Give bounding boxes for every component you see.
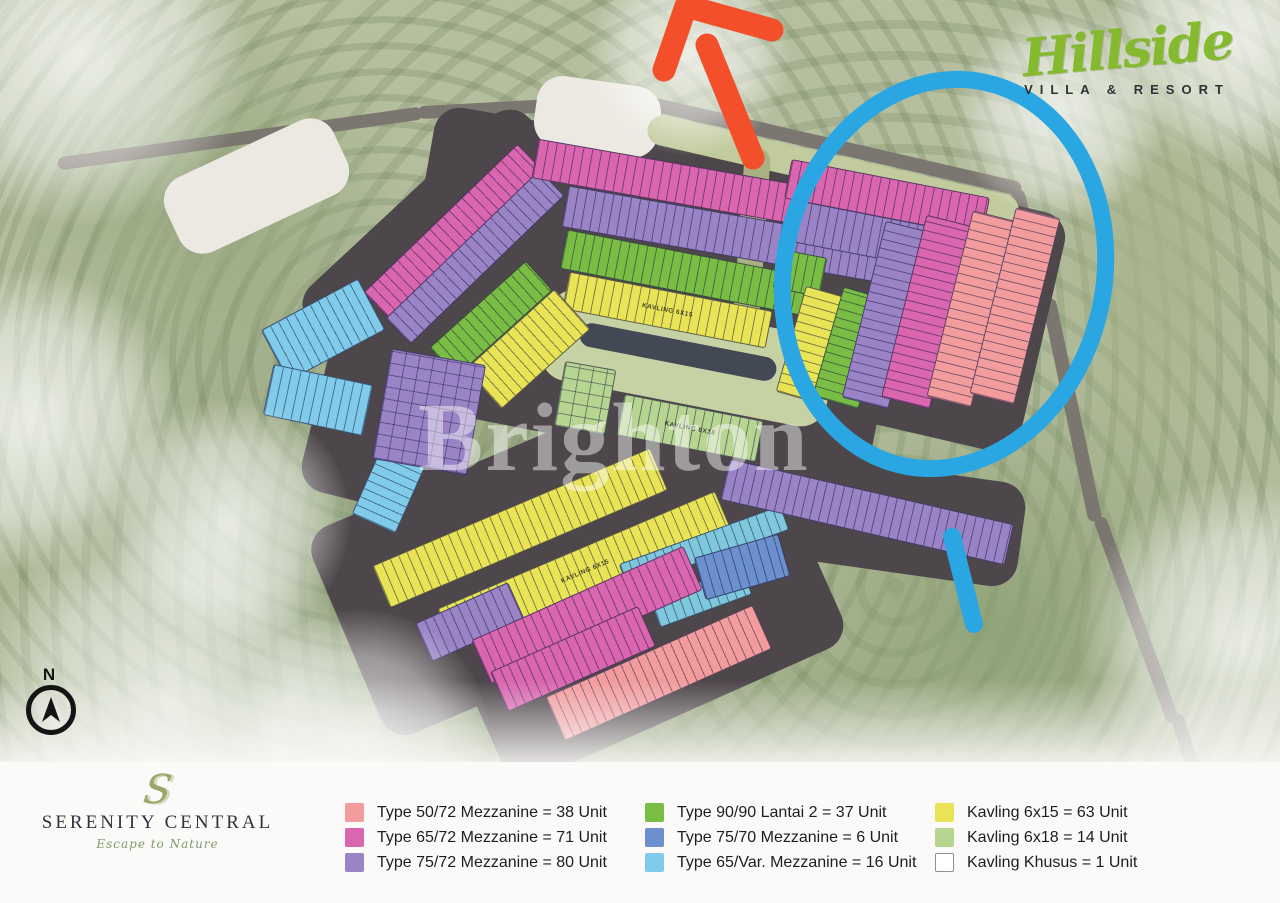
- legend-item: Kavling 6x18 = 14 Unit: [935, 825, 1137, 850]
- legend-swatch-type6572: [345, 828, 364, 847]
- legend-panel: S SERENITY CENTRAL Escape to Nature Type…: [0, 762, 1280, 903]
- legend-swatch-type9090: [645, 803, 664, 822]
- legend-column: Kavling 6x15 = 63 UnitKavling 6x18 = 14 …: [935, 800, 1137, 875]
- hillside-logo: Hillside VILLA & RESORT: [992, 24, 1262, 97]
- legend-item: Type 65/Var. Mezzanine = 16 Unit: [645, 850, 916, 875]
- siteplan-image: KAVLING 6X15KAVLING 6X18KAVLING 6X15 Bri…: [0, 0, 1280, 903]
- legend-swatch-type7570: [645, 828, 664, 847]
- legend-swatch-type7572: [345, 853, 364, 872]
- legend-label: Type 65/Var. Mezzanine = 16 Unit: [677, 854, 916, 872]
- legend-label: Type 65/72 Mezzanine = 71 Unit: [377, 829, 607, 847]
- legend-item: Kavling Khusus = 1 Unit: [935, 850, 1137, 875]
- hillside-wordmark: Hillside: [1020, 15, 1235, 85]
- legend-swatch-kavling618: [935, 828, 954, 847]
- serenity-central-logo: S SERENITY CENTRAL Escape to Nature: [30, 770, 285, 851]
- north-compass: N: [26, 666, 72, 735]
- legend-item: Type 75/72 Mezzanine = 80 Unit: [345, 850, 607, 875]
- legend-label: Kavling Khusus = 1 Unit: [967, 854, 1137, 872]
- map-block-type7572: [372, 349, 486, 476]
- legend-item: Kavling 6x15 = 63 Unit: [935, 800, 1137, 825]
- legend-swatch-type5072: [345, 803, 364, 822]
- compass-north-label: N: [26, 666, 72, 683]
- legend-swatch-kavling615: [935, 803, 954, 822]
- legend-column: Type 50/72 Mezzanine = 38 UnitType 65/72…: [345, 800, 607, 875]
- legend-column: Type 90/90 Lantai 2 = 37 UnitType 75/70 …: [645, 800, 916, 875]
- bottom-fade: [0, 680, 1280, 775]
- serenity-monogram-icon: S: [141, 770, 174, 810]
- legend-item: Type 75/70 Mezzanine = 6 Unit: [645, 825, 916, 850]
- legend-label: Kavling 6x18 = 14 Unit: [967, 829, 1128, 847]
- legend-label: Type 75/70 Mezzanine = 6 Unit: [677, 829, 898, 847]
- legend-item: Type 50/72 Mezzanine = 38 Unit: [345, 800, 607, 825]
- legend-swatch-type65var: [645, 853, 664, 872]
- legend-swatch-kavkhusus: [935, 853, 954, 872]
- legend-item: Type 65/72 Mezzanine = 71 Unit: [345, 825, 607, 850]
- compass-arrow-icon: [37, 696, 65, 724]
- serenity-title: SERENITY CENTRAL: [30, 812, 285, 834]
- compass-ring: [26, 685, 76, 735]
- legend-label: Kavling 6x15 = 63 Unit: [967, 804, 1128, 822]
- serenity-tagline: Escape to Nature: [30, 837, 285, 851]
- legend-label: Type 75/72 Mezzanine = 80 Unit: [377, 854, 607, 872]
- legend-item: Type 90/90 Lantai 2 = 37 Unit: [645, 800, 916, 825]
- mist-overlay: [110, 400, 350, 640]
- legend-label: Type 50/72 Mezzanine = 38 Unit: [377, 804, 607, 822]
- legend-label: Type 90/90 Lantai 2 = 37 Unit: [677, 804, 886, 822]
